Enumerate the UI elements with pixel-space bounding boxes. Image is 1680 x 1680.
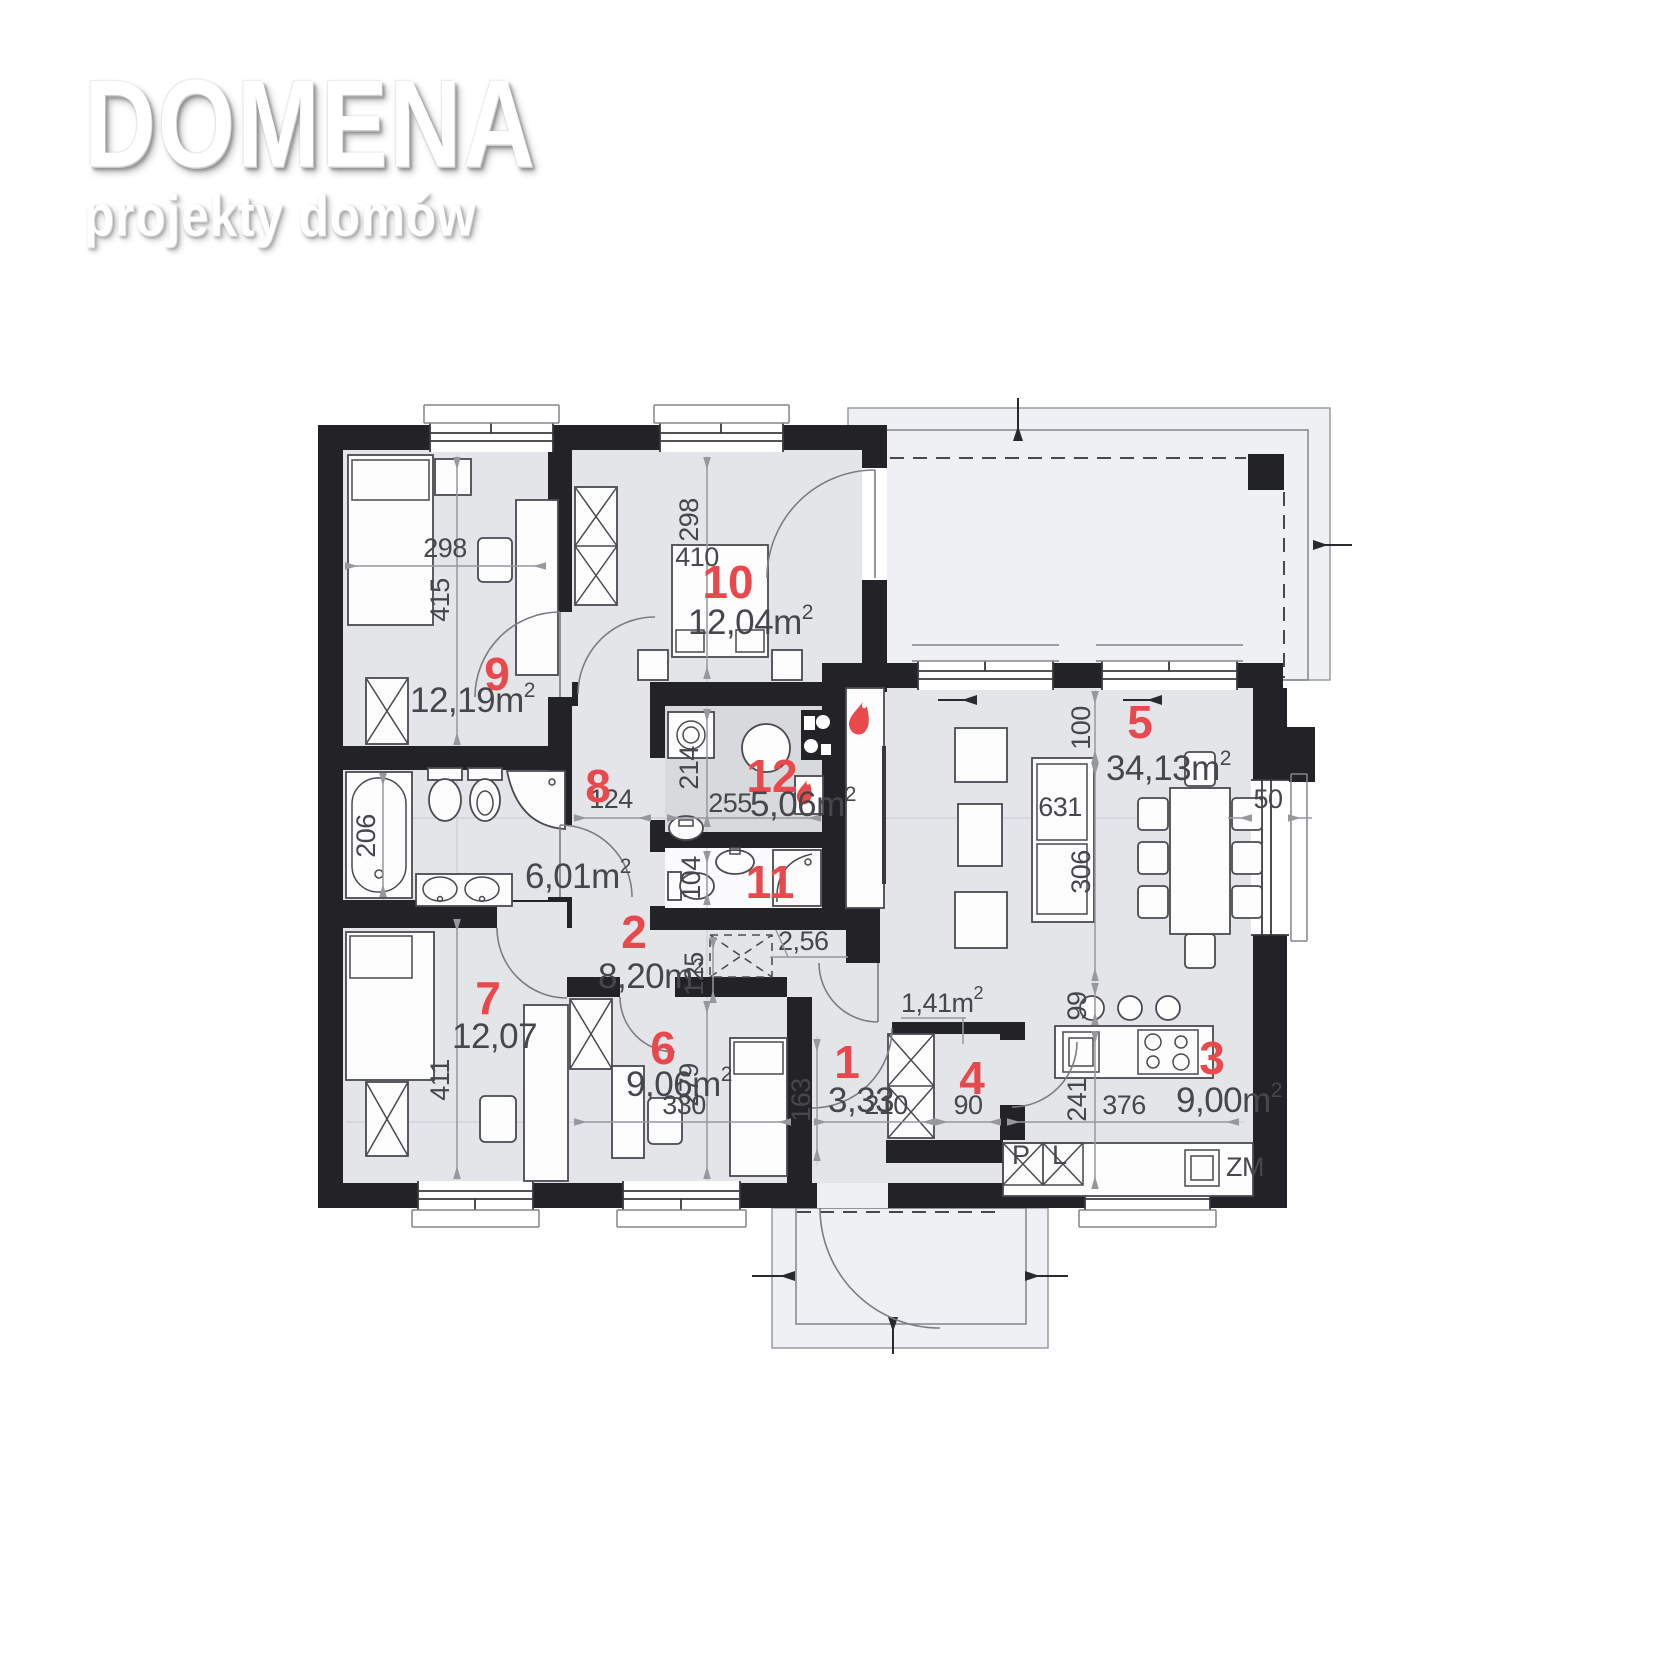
room-12-area: 5,06m2 <box>750 783 856 824</box>
room-2-area: 8,20m2 <box>598 955 704 996</box>
window-room9 <box>424 405 559 452</box>
entry-porch <box>752 1208 1068 1354</box>
window-room7 <box>412 1181 539 1227</box>
room-6-area: 9,06m2 <box>626 1063 732 1104</box>
chair-icon <box>1138 842 1168 874</box>
room-9-area: 12,19m2 <box>410 679 535 720</box>
desk-chair-icon <box>478 538 512 582</box>
bar-stool-icon <box>1118 996 1142 1020</box>
chair-icon <box>1232 886 1262 918</box>
room-7-area: 12,07 <box>452 1017 537 1056</box>
nightstand-icon <box>638 650 668 680</box>
bidet-icon <box>468 768 502 821</box>
chimney-block-icon <box>801 710 833 760</box>
dim-room1-height: 163 <box>786 1078 816 1122</box>
logo-title: DOMENA <box>84 62 537 186</box>
dim-living-top: 100 <box>1066 706 1096 750</box>
dim-room3-width: 376 <box>1102 1090 1146 1120</box>
room-3-number: 3 <box>1199 1032 1225 1084</box>
room-8-number: 8 <box>585 760 611 812</box>
dim-room9-width: 298 <box>423 533 467 563</box>
logo-subtitle: projekty domów <box>84 188 551 245</box>
sofa-icon <box>1032 758 1094 922</box>
room-4-area: 1,41m2 <box>901 983 984 1018</box>
bar-stool-icon <box>1156 996 1180 1020</box>
pouf-icon <box>958 804 1002 866</box>
washer-label: P <box>1012 1140 1030 1170</box>
dishwasher-label: ZM <box>1226 1152 1264 1182</box>
dim-sofa-length: 631 <box>1038 792 1082 822</box>
dim-room11-height: 104 <box>676 856 706 900</box>
dim-island-offset: 99 <box>1062 991 1092 1020</box>
nightstand-icon <box>772 650 802 680</box>
room-5-number: 5 <box>1127 696 1153 748</box>
dim-room8-height: 206 <box>351 814 381 858</box>
dim-room12-width: 255 <box>708 788 752 818</box>
floor-plan-drawing: 298 415 410 298 206 124 214 255 104 125 … <box>0 0 1680 1680</box>
fridge-label: L <box>1052 1140 1067 1170</box>
armchair-icon <box>955 892 1007 948</box>
wardrobe-icon <box>366 678 408 744</box>
nightstand-icon <box>435 459 471 495</box>
dim-window-offset: 50 <box>1253 784 1282 814</box>
armchair-icon <box>955 728 1007 782</box>
kitchen-counter <box>1003 1143 1253 1196</box>
dim-room7-height: 411 <box>425 1059 455 1101</box>
dim-living-mid: 306 <box>1066 850 1096 894</box>
bed-icon <box>730 1038 787 1176</box>
room-5-area: 34,13m2 <box>1106 747 1231 788</box>
dim-room3-height: 241 <box>1062 1078 1092 1122</box>
wardrobe-icon <box>570 999 612 1069</box>
chair-icon <box>1138 886 1168 918</box>
utility-sink-icon <box>669 816 703 840</box>
toilet-icon <box>428 768 462 821</box>
window-room10 <box>654 405 789 452</box>
wardrobe-icon <box>575 487 617 605</box>
bookcase-icon <box>516 500 558 675</box>
room-4-number: 4 <box>959 1052 985 1104</box>
logo: DOMENA projekty domów <box>84 62 576 240</box>
chair-icon <box>1232 842 1262 874</box>
dim-room9-height: 415 <box>425 578 455 622</box>
desk-chair-icon <box>480 1096 516 1142</box>
room-1-area: 3,33 <box>828 1081 894 1120</box>
double-washbasin-icon <box>416 874 512 906</box>
room-2-number: 2 <box>621 906 647 958</box>
bed-icon <box>346 932 434 1080</box>
dim-room12-height: 214 <box>674 746 704 790</box>
terrace-column <box>1248 454 1284 490</box>
chair-icon <box>1138 798 1168 830</box>
floor-plan-page: DOMENA projekty domów <box>0 0 1680 1680</box>
kitchen-island-icon <box>1055 1026 1213 1078</box>
chair-icon <box>1185 934 1215 968</box>
dim-room10-height: 298 <box>674 498 704 542</box>
room-10-number: 10 <box>702 556 753 608</box>
wardrobe-icon <box>366 1082 408 1156</box>
window-room6 <box>617 1181 746 1227</box>
room-11-number: 11 <box>746 856 795 908</box>
room-3-area: 9,00m2 <box>1176 1079 1282 1120</box>
terrace <box>848 398 1352 680</box>
room-10-area: 12,04m2 <box>688 601 813 642</box>
room-8-area: 6,01m2 <box>525 855 631 896</box>
bed-icon <box>348 455 433 625</box>
